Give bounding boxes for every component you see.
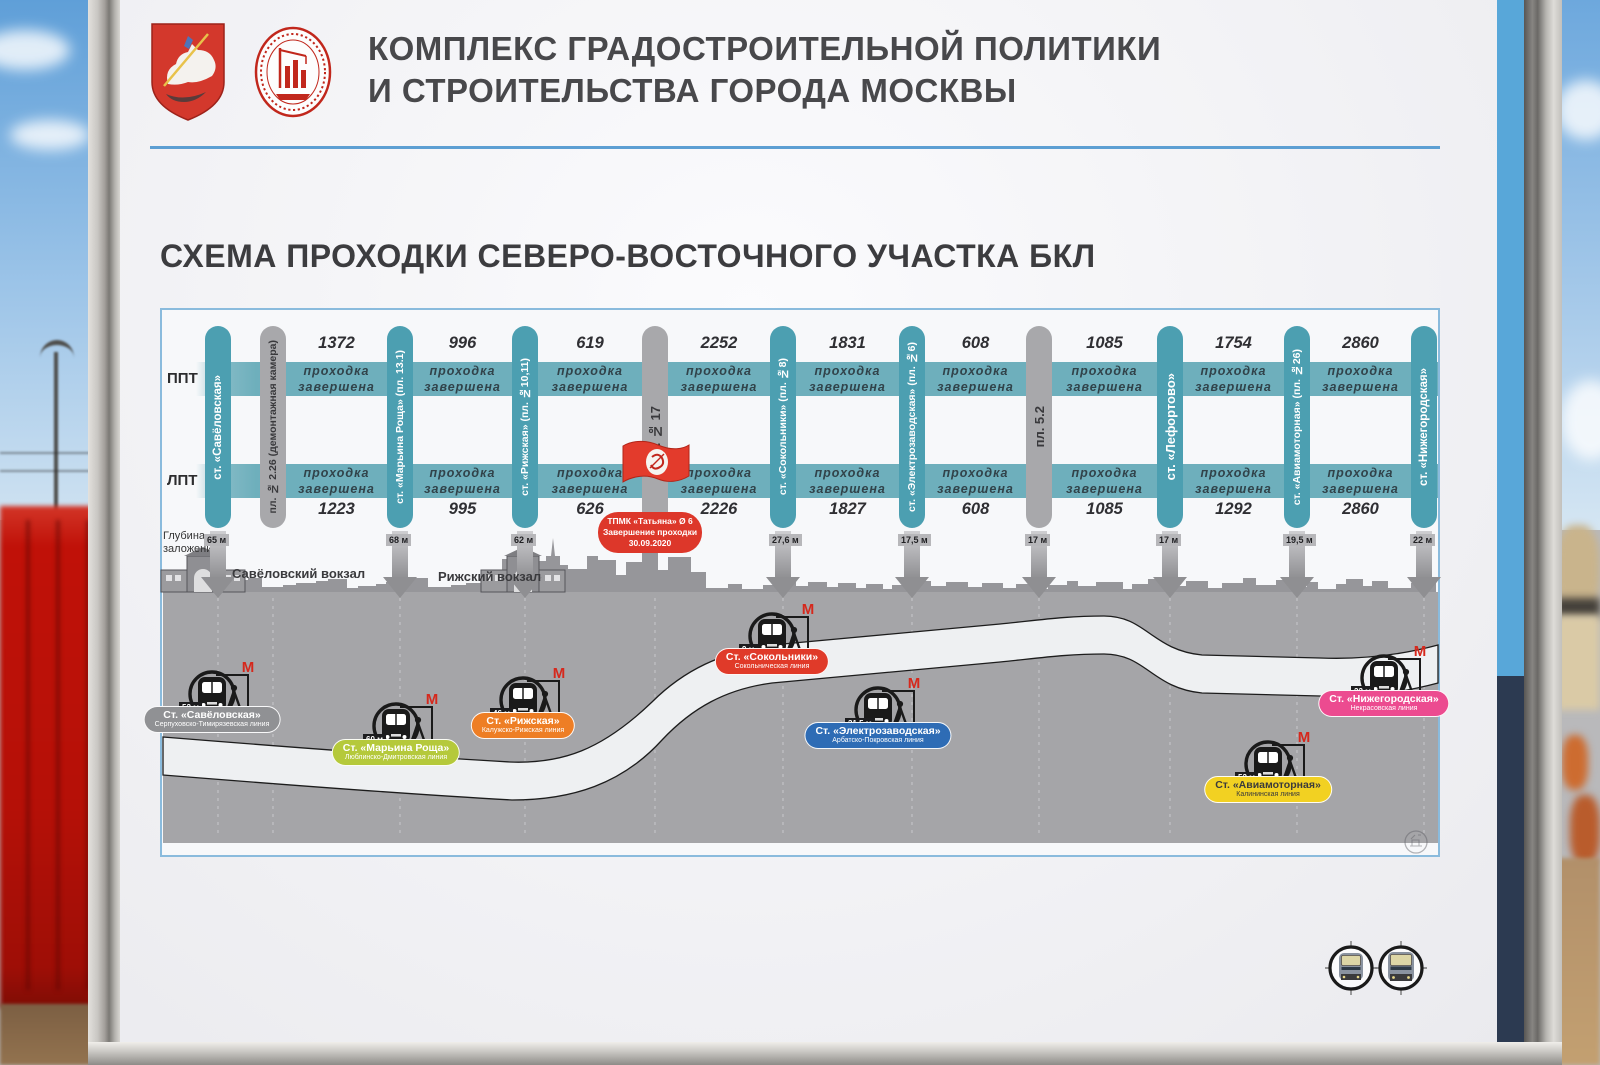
depth-value: 22 м (1410, 534, 1435, 546)
depth-value: 17,5 м (898, 534, 931, 546)
station-pill: пл. № 2.26 (демонтажная камера) (260, 326, 286, 528)
station-pill: ст. «Лефортово» (1157, 326, 1183, 528)
depth-value: 62 м (511, 534, 536, 546)
depth-arrow-head (201, 577, 235, 598)
station-pill: ст. «Нижегородская» (1411, 326, 1437, 528)
svg-text:М: М (242, 660, 255, 676)
tbm-note-line2: Завершение проходки (600, 527, 700, 538)
track-label-lpt: ЛПТ (167, 472, 197, 489)
tunnel-train-icon-left (1325, 941, 1377, 995)
segment-length-bottom: 608 (906, 500, 1046, 519)
svg-text:М: М (802, 602, 815, 618)
depth-arrow-head (1153, 577, 1187, 598)
depth-value: 17 м (1156, 534, 1181, 546)
segment-length-top: 2860 (1291, 334, 1431, 353)
depth-arrow-head (1280, 577, 1314, 598)
depth-arrow-head (766, 577, 800, 598)
segment-length-bottom: 1085 (1035, 500, 1175, 519)
tbm-note: ТПМК «Татьяна» Ø 6 Завершение проходки 3… (598, 512, 702, 553)
segment-length-bottom: 2860 (1291, 500, 1431, 519)
board-frame-bottom (88, 1042, 1562, 1065)
svg-text:М: М (908, 676, 921, 692)
svg-text:М: М (426, 692, 439, 708)
tbm-note-line1: ТПМК «Татьяна» Ø 6 (600, 516, 700, 527)
depth-arrow-head (1407, 577, 1441, 598)
metro-station-label: Ст. «Авиамоторная» Калининская линия (1204, 776, 1332, 803)
board-frame-right (1524, 0, 1562, 1065)
depth-value: 27,6 м (769, 534, 802, 546)
depth-arrow-head (1022, 577, 1056, 598)
diagram-content: ППТЛПТГлубина заложения1372проходка заве… (0, 0, 1600, 1065)
metro-station-label: Ст. «Савёловская» Серпуховско-Тимирязевс… (144, 706, 281, 733)
segment-length-bottom: 1292 (1164, 500, 1304, 519)
station-pill: ст. «Сокольники» (пл. №8) (770, 326, 796, 528)
terminal-label: Рижский вокзал (438, 569, 541, 584)
station-pill: ст. «Рижская» (пл. №10,11) (512, 326, 538, 528)
segment-length-top: 1372 (267, 334, 407, 353)
segment-length-bottom: 1223 (267, 500, 407, 519)
metro-station-label: Ст. «Нижегородская» Некрасовская линия (1318, 690, 1449, 717)
station-pill: пл. 5.2 (1026, 326, 1052, 528)
segment-length-top: 1085 (1035, 334, 1175, 353)
station-pill: ст. «Марьина Роща» (пл. 13.1) (387, 326, 413, 528)
depth-arrow-head (383, 577, 417, 598)
metro-station-label: Ст. «Электрозаводская» Арбатско-Покровск… (804, 722, 951, 749)
segment-length-bottom: 1827 (778, 500, 918, 519)
station-pill: ст. «Савёловская» (205, 326, 231, 528)
svg-text:М: М (1414, 644, 1427, 660)
station-pill: пл. № 17 (642, 326, 668, 542)
svg-text:М: М (553, 666, 566, 682)
metro-station-label: Ст. «Рижская» Калужско-Рижская линия (471, 712, 575, 739)
segment-length-top: 1831 (778, 334, 918, 353)
depth-value: 68 м (386, 534, 411, 546)
svg-text:М: М (1298, 730, 1311, 746)
depth-arrow-head (895, 577, 929, 598)
board-frame-left (88, 0, 120, 1065)
track-label-ppt: ППТ (167, 370, 198, 387)
depth-value: 17 м (1025, 534, 1050, 546)
metro-station-label: Ст. «Сокольники» Сокольническая линия (715, 648, 829, 675)
depth-value: 19,5 м (1283, 534, 1316, 546)
segment-length-top: 1754 (1164, 334, 1304, 353)
station-pill: ст. «Электрозаводская» (пл. №6) (899, 326, 925, 528)
tbm-note-line3: 30.09.2020 (600, 538, 700, 549)
station-pill: ст. «Авиамоторная» (пл. №26) (1284, 326, 1310, 528)
terminal-label: Савёловский вокзал (232, 566, 365, 581)
metro-station-label: Ст. «Марьина Роща» Люблинско-Дмитровская… (332, 739, 460, 766)
segment-length-top: 2252 (649, 334, 789, 353)
stage: КОМПЛЕКС ГРАДОСТРОИТЕЛЬНОЙ ПОЛИТИКИ И СТ… (0, 0, 1600, 1065)
depth-value: 65 м (204, 534, 229, 546)
tbm-flag-icon (621, 438, 691, 488)
segment-length-top: 608 (906, 334, 1046, 353)
segment-length-top: 619 (520, 334, 660, 353)
tunnel-train-icon-right (1375, 941, 1427, 995)
